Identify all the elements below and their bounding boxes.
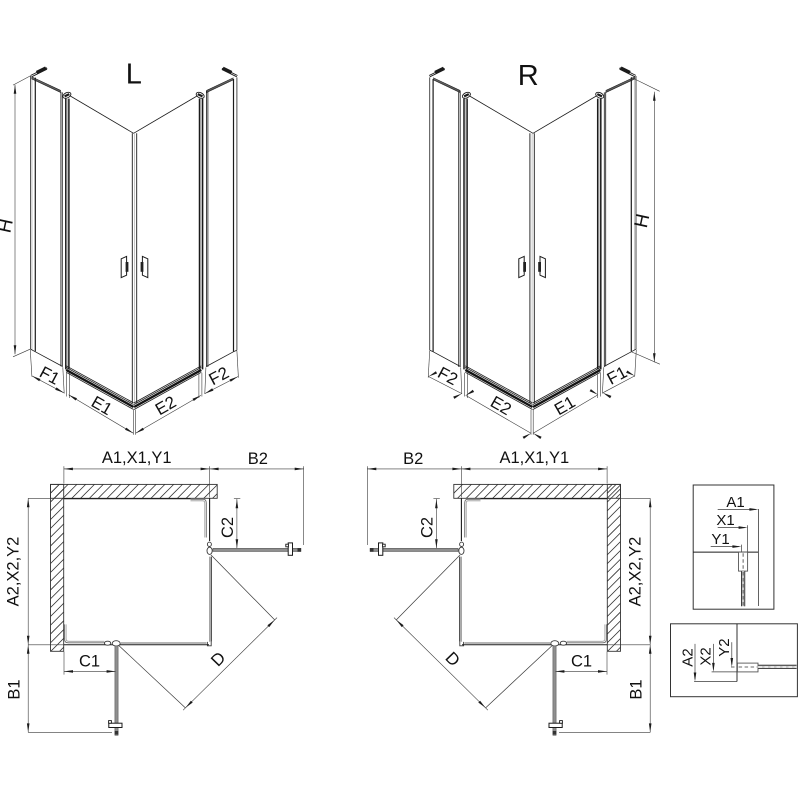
svg-text:A1: A1 [726, 494, 744, 511]
svg-text:C2: C2 [219, 517, 237, 538]
svg-text:A2: A2 [679, 648, 696, 666]
svg-text:Y1: Y1 [711, 531, 729, 548]
svg-text:C1: C1 [571, 653, 592, 671]
svg-text:L: L [126, 59, 142, 91]
svg-text:A2,X2,Y2: A2,X2,Y2 [5, 537, 23, 607]
svg-text:B2: B2 [248, 450, 268, 468]
svg-text:A1,X1,Y1: A1,X1,Y1 [499, 449, 569, 467]
svg-text:B2: B2 [403, 450, 423, 468]
svg-text:B1: B1 [628, 679, 646, 699]
svg-text:A2,X2,Y2: A2,X2,Y2 [627, 537, 645, 607]
svg-text:X1: X1 [716, 512, 734, 529]
svg-text:X2: X2 [698, 647, 715, 665]
svg-text:A1,X1,Y1: A1,X1,Y1 [102, 449, 172, 467]
svg-text:B1: B1 [6, 679, 24, 699]
svg-text:C2: C2 [418, 517, 436, 538]
svg-text:Y2: Y2 [716, 638, 733, 656]
svg-text:C1: C1 [79, 653, 100, 671]
svg-text:R: R [518, 60, 539, 92]
